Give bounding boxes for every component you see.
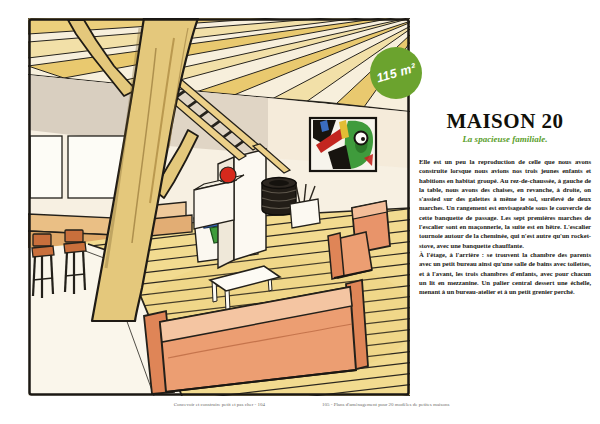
footer-right-page: 105 - Plans d'aménagement pour 20 modèle… [322,402,582,407]
article-paragraph: À l'étage, à l'arrière : se trouvent la … [419,250,591,296]
footer-left-page: Concevoir et construire petit et pas che… [28,402,265,407]
article-body: Elle est un peu la reproduction de celle… [419,157,591,296]
article-paragraph: Elle est un peu la reproduction de celle… [419,157,591,250]
area-badge-label: 115 m² [375,61,418,86]
article-column: MAISON 20 La spacieuse familiale. Elle e… [419,110,591,296]
wall-painting [310,118,376,171]
red-ball [220,167,236,183]
page-title: MAISON 20 [419,110,591,132]
interior-illustration [28,18,410,396]
page-subtitle: La spacieuse familiale. [419,134,591,144]
area-badge: 115 m² [370,47,422,99]
book-spread-page: 115 m² MAISON 20 La spacieuse familiale.… [0,0,600,424]
